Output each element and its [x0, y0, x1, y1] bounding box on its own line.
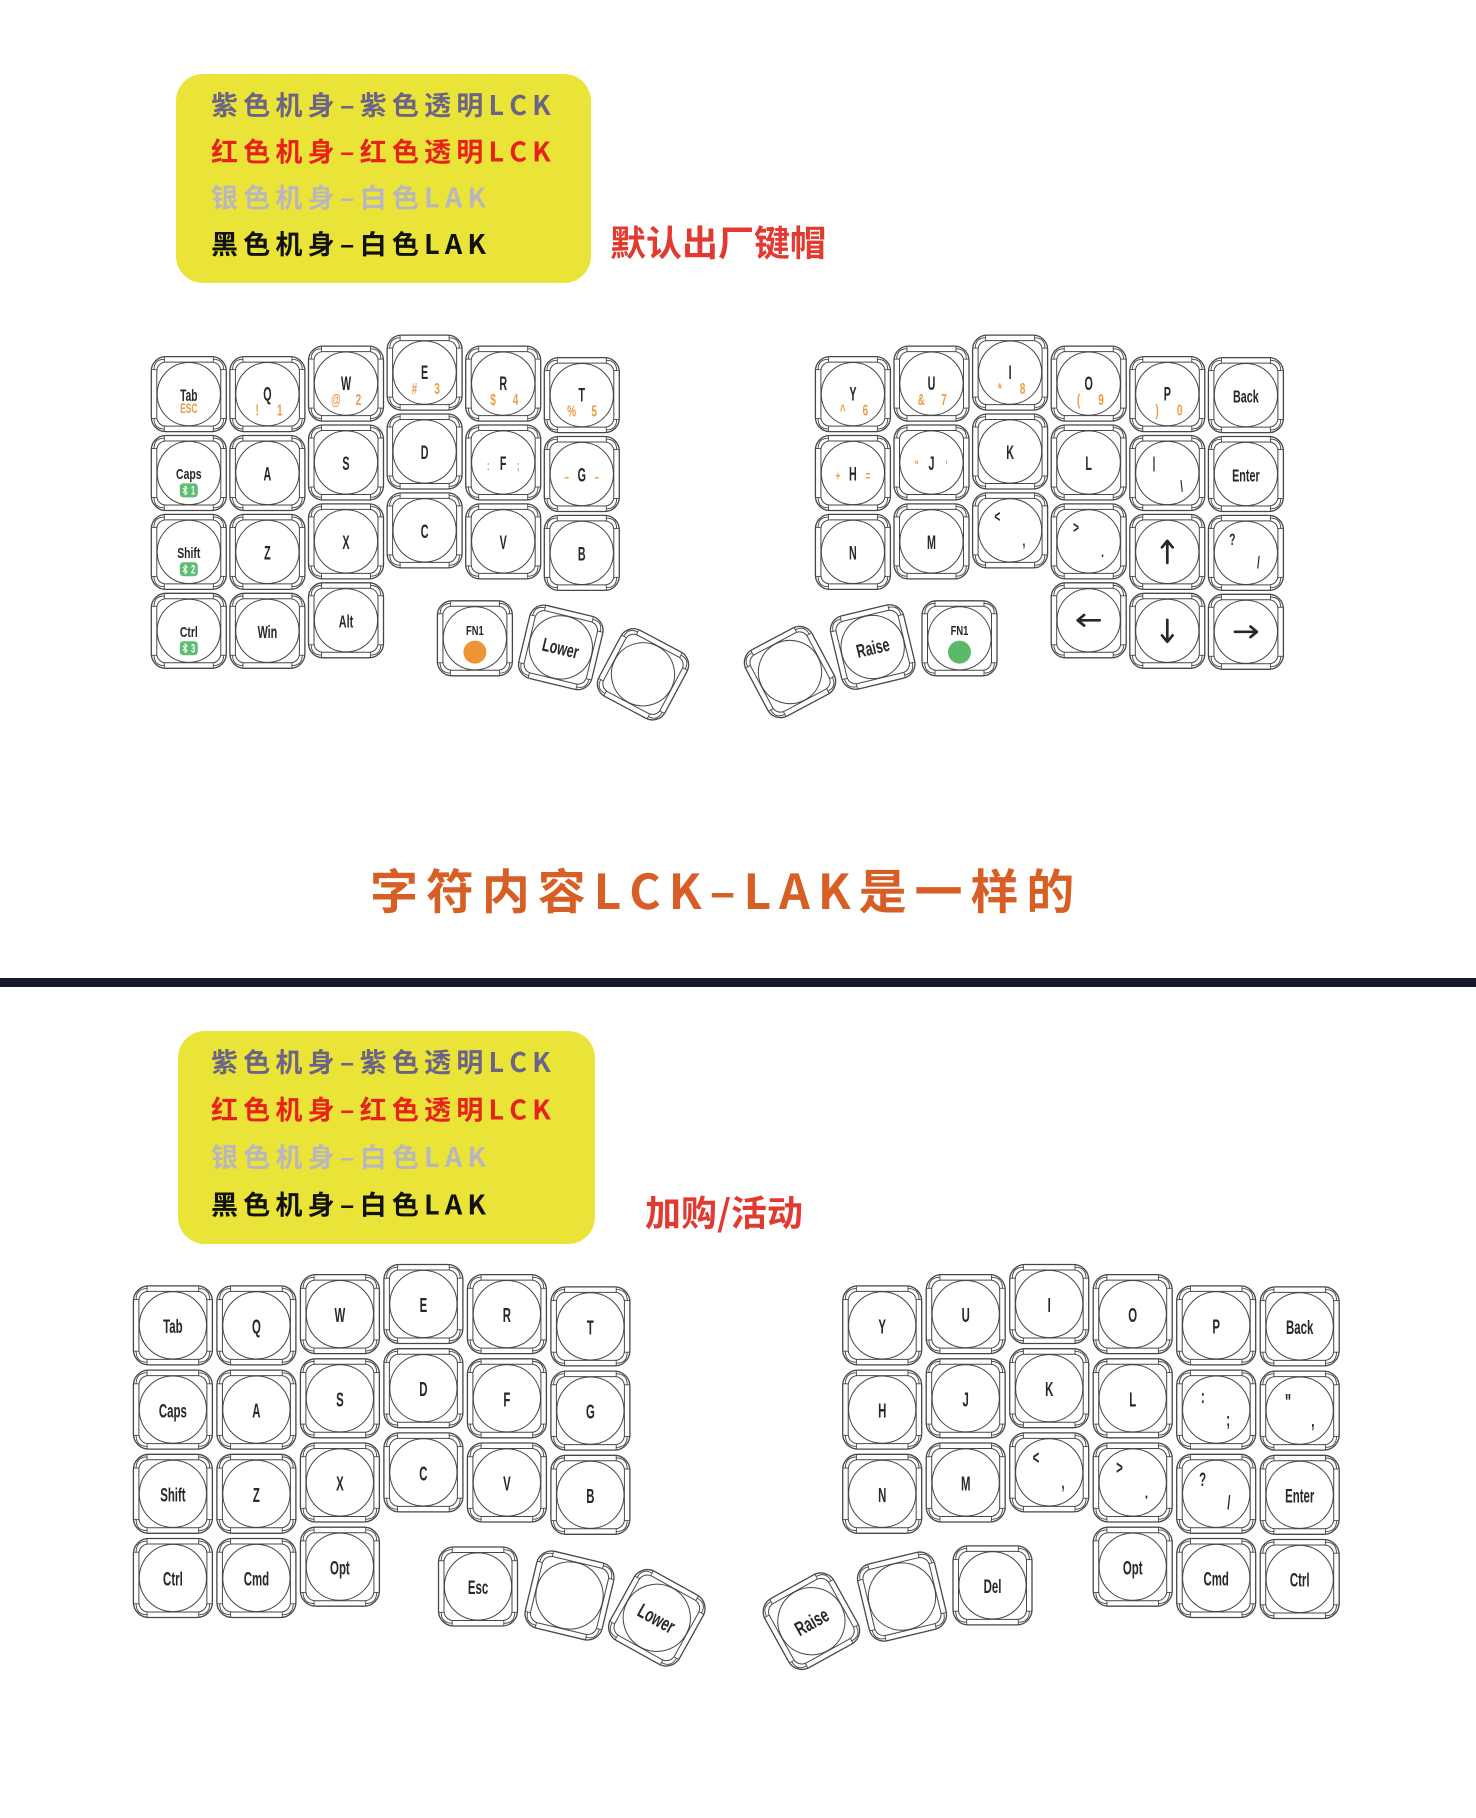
svg-text:T: T	[579, 385, 586, 406]
svg-text:Shift: Shift	[177, 545, 201, 561]
svg-text:W: W	[341, 374, 351, 395]
svg-text:–: –	[595, 471, 600, 486]
svg-text:1: 1	[277, 401, 283, 419]
svg-text:M: M	[927, 533, 936, 554]
svg-text:8: 8	[1020, 380, 1026, 398]
svg-text:': '	[946, 459, 948, 474]
svg-text:;: ;	[1226, 1410, 1230, 1431]
svg-text:Enter: Enter	[1285, 1487, 1314, 1508]
svg-text:V: V	[500, 533, 507, 554]
svg-text:U: U	[962, 1304, 970, 1328]
svg-text:=: =	[866, 470, 871, 485]
svg-text:.: .	[1145, 1483, 1148, 1504]
svg-text:O: O	[1128, 1304, 1137, 1328]
svg-text:A: A	[252, 1399, 260, 1423]
svg-text:Ctrl: Ctrl	[180, 624, 198, 640]
svg-text:O: O	[1085, 374, 1093, 395]
svg-text:(: (	[1077, 391, 1081, 409]
svg-text:Back: Back	[1233, 388, 1259, 407]
svg-text:S: S	[342, 454, 349, 475]
svg-text:N: N	[878, 1483, 886, 1507]
svg-text:,: ,	[1311, 1409, 1314, 1432]
svg-text:H: H	[849, 464, 857, 485]
svg-text:Opt: Opt	[330, 1559, 350, 1580]
svg-text:.: .	[1101, 541, 1104, 560]
svg-text:>: >	[1116, 1458, 1123, 1479]
svg-text:|: |	[1153, 453, 1156, 471]
svg-text:,: ,	[1061, 1473, 1064, 1494]
svg-text:N: N	[849, 543, 857, 564]
svg-text:3: 3	[434, 380, 440, 398]
svg-text:5: 5	[591, 402, 597, 420]
svg-text:Ctrl: Ctrl	[163, 1570, 183, 1591]
svg-text:Esc: Esc	[468, 1578, 489, 1599]
svg-text:P: P	[1164, 384, 1171, 405]
svg-text:E: E	[421, 363, 428, 384]
svg-text:J: J	[929, 454, 935, 475]
svg-text:Cmd: Cmd	[1203, 1570, 1228, 1591]
svg-text:2: 2	[356, 391, 362, 409]
svg-text:;: ;	[517, 459, 520, 474]
svg-text:R: R	[499, 374, 507, 395]
svg-text:D: D	[421, 443, 429, 464]
svg-text:Alt: Alt	[339, 613, 353, 632]
svg-text:Q: Q	[263, 384, 271, 405]
svg-text:R: R	[503, 1304, 511, 1328]
svg-text:F: F	[503, 1388, 510, 1412]
svg-text:0: 0	[1177, 401, 1183, 419]
svg-text:L: L	[1129, 1388, 1136, 1412]
svg-text:+: +	[836, 470, 841, 485]
svg-text:D: D	[419, 1378, 427, 1402]
svg-text:%: %	[567, 402, 576, 420]
svg-text:Ctrl: Ctrl	[1290, 1571, 1310, 1592]
svg-text:>: >	[1073, 517, 1079, 536]
svg-text:2: 2	[191, 564, 195, 577]
svg-text:L: L	[1085, 454, 1092, 475]
svg-text:*: *	[998, 380, 1003, 398]
svg-text:T: T	[587, 1316, 594, 1340]
svg-text:Caps: Caps	[159, 1402, 187, 1423]
svg-text:I: I	[1009, 363, 1012, 384]
svg-text:": "	[1285, 1389, 1291, 1414]
svg-text:S: S	[336, 1388, 344, 1412]
svg-text:Caps: Caps	[176, 466, 202, 482]
svg-text:B: B	[578, 544, 586, 565]
svg-text:1: 1	[191, 485, 195, 498]
svg-text:ESC: ESC	[180, 402, 198, 417]
svg-text:Z: Z	[264, 543, 271, 564]
svg-text:W: W	[335, 1304, 346, 1328]
svg-text:\: \	[1180, 477, 1183, 495]
svg-text:A: A	[264, 464, 272, 485]
svg-text:C: C	[419, 1462, 427, 1486]
svg-text:I: I	[1048, 1293, 1051, 1317]
svg-text:<: <	[1033, 1448, 1040, 1469]
svg-text:9: 9	[1098, 391, 1104, 409]
svg-text:B: B	[586, 1484, 594, 1508]
svg-text:6: 6	[863, 401, 869, 419]
svg-text:H: H	[878, 1399, 886, 1423]
svg-text:@: @	[331, 391, 341, 409]
svg-text:,: ,	[1022, 530, 1025, 549]
svg-text:?: ?	[1229, 529, 1235, 548]
svg-text:FN1: FN1	[951, 625, 969, 639]
svg-text:): )	[1155, 401, 1158, 419]
svg-text:3: 3	[191, 643, 195, 656]
svg-text::: :	[487, 459, 490, 474]
svg-text:F: F	[500, 454, 507, 475]
svg-text:Opt: Opt	[1123, 1559, 1143, 1580]
svg-text:C: C	[421, 522, 429, 543]
svg-text:Back: Back	[1286, 1318, 1314, 1339]
svg-text:J: J	[963, 1388, 969, 1412]
svg-text:G: G	[586, 1400, 595, 1424]
svg-text:FN1: FN1	[466, 625, 484, 639]
svg-text:E: E	[420, 1293, 428, 1317]
svg-text:<: <	[994, 506, 1000, 525]
svg-text:$: $	[490, 391, 496, 409]
svg-text:Tab: Tab	[163, 1317, 182, 1338]
svg-text:Cmd: Cmd	[244, 1570, 269, 1591]
svg-text::: :	[1201, 1387, 1205, 1408]
svg-text:7: 7	[941, 391, 947, 409]
svg-text:U: U	[928, 374, 936, 395]
svg-text:#: #	[412, 380, 418, 398]
svg-text:&: &	[918, 391, 926, 409]
svg-text:X: X	[342, 533, 349, 554]
svg-text:Win: Win	[258, 624, 278, 643]
svg-text:/: /	[1227, 1493, 1231, 1514]
svg-text:Del: Del	[984, 1577, 1002, 1598]
svg-text:P: P	[1212, 1315, 1220, 1339]
svg-text:4: 4	[513, 391, 519, 409]
svg-text:–: –	[565, 471, 570, 486]
svg-text:Enter: Enter	[1232, 467, 1260, 486]
svg-text:K: K	[1006, 443, 1014, 464]
svg-text:^: ^	[840, 401, 846, 419]
svg-text:G: G	[578, 465, 586, 486]
svg-text:K: K	[1045, 1378, 1053, 1402]
svg-text:": "	[915, 459, 919, 474]
svg-text:Y: Y	[878, 1315, 886, 1339]
svg-text:Q: Q	[252, 1315, 261, 1339]
svg-text:X: X	[336, 1472, 344, 1496]
svg-text:!: !	[256, 401, 259, 419]
svg-text:?: ?	[1199, 1470, 1206, 1491]
svg-text:Z: Z	[253, 1483, 260, 1507]
svg-text:M: M	[961, 1472, 970, 1496]
svg-text:Y: Y	[849, 384, 856, 405]
svg-text:Shift: Shift	[160, 1486, 186, 1507]
svg-text:/: /	[1257, 552, 1260, 571]
svg-text:V: V	[503, 1472, 511, 1496]
